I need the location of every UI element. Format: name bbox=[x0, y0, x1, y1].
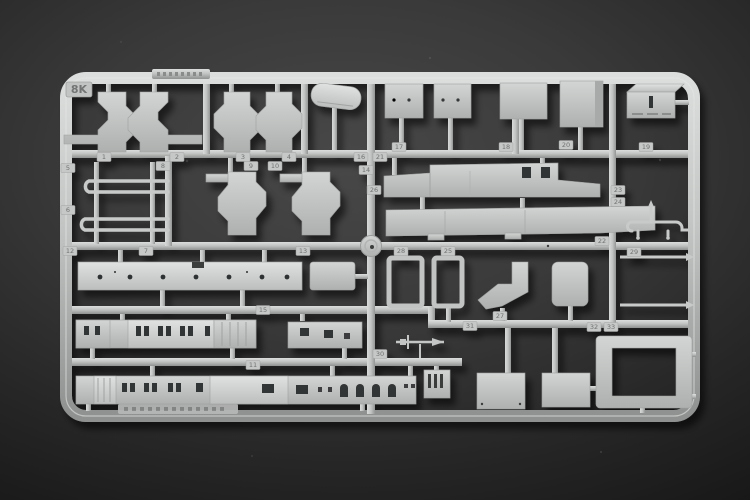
part-number-tag: 4 bbox=[282, 153, 296, 162]
part-number-tag: 24 bbox=[611, 198, 625, 207]
mold-stamp-bottom bbox=[118, 404, 238, 414]
part-number-tag: 1 bbox=[97, 153, 111, 162]
part-bogie-bracket-1 bbox=[64, 92, 138, 152]
part-vent-block bbox=[424, 370, 450, 398]
svg-text:22: 22 bbox=[598, 237, 606, 245]
svg-text:17: 17 bbox=[395, 143, 403, 151]
svg-text:18: 18 bbox=[502, 143, 510, 151]
svg-text:29: 29 bbox=[630, 248, 638, 256]
svg-text:26: 26 bbox=[370, 186, 378, 194]
svg-text:23: 23 bbox=[614, 186, 622, 194]
part-number-tag: 9 bbox=[244, 162, 258, 171]
svg-text:12: 12 bbox=[66, 247, 74, 255]
svg-text:16: 16 bbox=[357, 153, 365, 161]
svg-text:31: 31 bbox=[466, 322, 474, 330]
svg-text:3: 3 bbox=[241, 153, 245, 161]
part-number-tag: 5 bbox=[61, 164, 75, 173]
part-number-tag: 17 bbox=[392, 143, 406, 152]
svg-text:32: 32 bbox=[590, 323, 598, 331]
part-number-tag: 8 bbox=[156, 162, 170, 171]
part-number-tag: 32 bbox=[587, 323, 601, 332]
part-carbody-side-segment bbox=[288, 322, 362, 348]
svg-text:8: 8 bbox=[161, 162, 165, 170]
part-number-tag: 18 bbox=[499, 143, 513, 152]
svg-text:19: 19 bbox=[642, 143, 650, 151]
part-number-tag: 27 bbox=[493, 312, 507, 321]
model-kit-sprue-photo: 8K 1 2 3 4 5 6 7 8 9 10 11 12 13 14 15 1… bbox=[0, 0, 750, 500]
svg-text:1: 1 bbox=[102, 153, 106, 161]
svg-text:8K: 8K bbox=[71, 83, 88, 96]
svg-text:27: 27 bbox=[496, 312, 504, 320]
part-number-tag: 7 bbox=[139, 247, 153, 256]
part-small-block bbox=[310, 262, 355, 290]
part-antenna bbox=[396, 335, 444, 358]
part-number-tag: 22 bbox=[595, 237, 609, 246]
part-panel-a bbox=[477, 373, 525, 409]
part-number-tag: 16 bbox=[354, 153, 368, 162]
part-number-tag: 20 bbox=[559, 141, 573, 150]
part-number-tag: 23 bbox=[611, 186, 625, 195]
svg-text:11: 11 bbox=[249, 361, 257, 369]
part-number-tag: 2 bbox=[170, 153, 184, 162]
part-rod-frame bbox=[620, 253, 694, 309]
part-rounded-block bbox=[552, 262, 588, 306]
svg-text:7: 7 bbox=[144, 247, 148, 255]
svg-text:4: 4 bbox=[287, 153, 291, 161]
part-number-tag: 21 bbox=[373, 153, 387, 162]
part-hook-bracket bbox=[478, 262, 528, 309]
part-bogie-bracket-2 bbox=[128, 92, 202, 152]
svg-text:13: 13 bbox=[299, 247, 307, 255]
svg-text:21: 21 bbox=[376, 153, 384, 161]
part-panel-b bbox=[542, 373, 590, 407]
svg-text:2: 2 bbox=[175, 153, 179, 161]
part-roof-section bbox=[384, 163, 600, 197]
part-bogie-bracket-3 bbox=[214, 92, 260, 152]
part-number-tag: 29 bbox=[627, 248, 641, 257]
part-number-tag: 33 bbox=[604, 323, 618, 332]
mold-stamp-top bbox=[152, 69, 210, 79]
svg-text:6: 6 bbox=[66, 206, 70, 214]
part-bogie-bracket-4 bbox=[256, 92, 302, 152]
part-cabinet-box bbox=[560, 81, 603, 127]
part-number-tag: 14 bbox=[359, 166, 373, 175]
part-bogie-bracket-5 bbox=[206, 172, 266, 235]
part-number-tag: 3 bbox=[236, 153, 250, 162]
part-carbody-side-upper bbox=[76, 320, 256, 348]
part-number-tag: 30 bbox=[373, 350, 387, 359]
part-roof-panel-18 bbox=[434, 84, 471, 118]
svg-text:20: 20 bbox=[562, 141, 570, 149]
svg-text:15: 15 bbox=[259, 306, 267, 314]
sprue: 8K 1 2 3 4 5 6 7 8 9 10 11 12 13 14 15 1… bbox=[61, 69, 696, 416]
svg-text:24: 24 bbox=[614, 198, 622, 206]
part-number-tag: 13 bbox=[296, 247, 310, 256]
svg-text:5: 5 bbox=[66, 164, 70, 172]
part-number-tag: 12 bbox=[63, 247, 77, 256]
svg-text:33: 33 bbox=[607, 323, 615, 331]
part-number-tag: 19 bbox=[639, 143, 653, 152]
part-number-tag: 25 bbox=[441, 247, 455, 256]
part-number-tag: 31 bbox=[463, 322, 477, 331]
part-number-tag: 10 bbox=[268, 162, 282, 171]
part-cylinder-panel bbox=[310, 82, 362, 111]
svg-text:10: 10 bbox=[271, 162, 279, 170]
part-window-frame-large bbox=[596, 336, 692, 408]
part-carbody-side-long bbox=[76, 376, 416, 404]
part-number-tag: 26 bbox=[367, 186, 381, 195]
part-roof-panel-17 bbox=[385, 84, 423, 118]
svg-text:14: 14 bbox=[362, 166, 370, 174]
sprue-scene: 8K 1 2 3 4 5 6 7 8 9 10 11 12 13 14 15 1… bbox=[0, 0, 750, 500]
part-window-frame-25 bbox=[434, 258, 462, 306]
part-number-tag: 6 bbox=[61, 206, 75, 215]
part-number-tag: 28 bbox=[394, 247, 408, 256]
ejector-ring bbox=[361, 236, 382, 257]
svg-text:30: 30 bbox=[376, 350, 384, 358]
part-number-tag: 11 bbox=[246, 361, 260, 370]
svg-text:9: 9 bbox=[249, 162, 253, 170]
svg-text:25: 25 bbox=[444, 247, 452, 255]
svg-text:28: 28 bbox=[397, 247, 405, 255]
part-underframe-strip bbox=[78, 262, 302, 290]
part-bogie-bracket-6 bbox=[280, 172, 340, 235]
part-roof-panel-19 bbox=[500, 83, 547, 119]
part-window-frame-28 bbox=[389, 258, 422, 306]
sprue-code-tag: 8K bbox=[66, 82, 92, 97]
part-number-tag: 15 bbox=[256, 306, 270, 315]
